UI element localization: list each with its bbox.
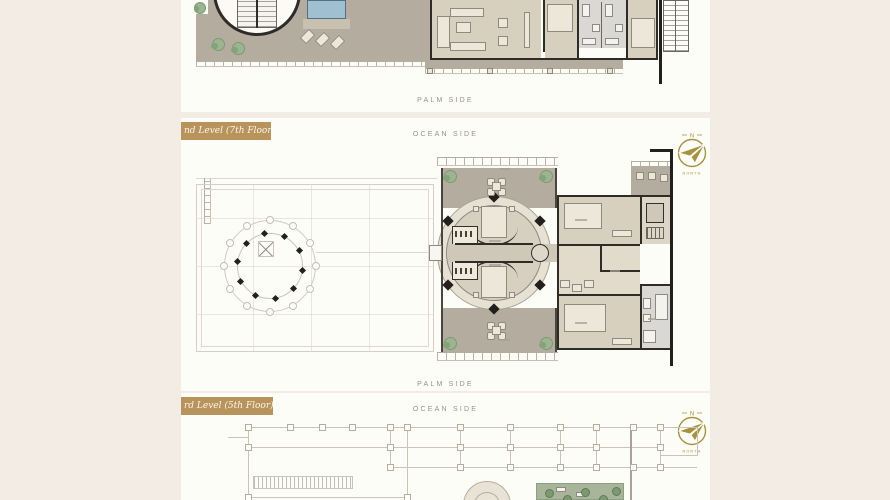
shear-wall-line xyxy=(630,424,632,500)
structural-column xyxy=(404,424,411,431)
structural-column xyxy=(630,424,637,431)
structural-column xyxy=(245,424,252,431)
structural-column xyxy=(657,464,664,471)
structural-column xyxy=(507,444,514,451)
shrub-icon xyxy=(563,495,572,500)
plan-line xyxy=(390,467,697,468)
structural-column xyxy=(387,444,394,451)
structural-column xyxy=(593,464,600,471)
structural-column xyxy=(245,494,252,500)
structural-column xyxy=(630,464,637,471)
structural-column xyxy=(457,464,464,471)
structural-column xyxy=(245,444,252,451)
structural-column xyxy=(557,464,564,471)
structural-column xyxy=(457,424,464,431)
plan-line xyxy=(660,455,697,456)
shrub-icon xyxy=(545,489,554,498)
plan-line xyxy=(407,427,408,498)
shrub-icon xyxy=(581,488,590,497)
structural-column xyxy=(457,444,464,451)
plan-line xyxy=(248,427,249,498)
brochure-page: PALM SIDE nd Level (7th Floor) OCEAN SID… xyxy=(0,0,890,500)
level5-plan xyxy=(0,0,890,500)
structural-column xyxy=(557,444,564,451)
shrub-icon xyxy=(599,495,608,500)
plan-line xyxy=(228,437,248,438)
plan-line xyxy=(697,427,698,456)
structural-column xyxy=(404,494,411,500)
plan-line xyxy=(248,497,408,498)
structural-column xyxy=(507,424,514,431)
structural-column xyxy=(657,424,664,431)
structural-column xyxy=(387,464,394,471)
structural-column xyxy=(657,444,664,451)
shrub-icon xyxy=(612,487,621,496)
structural-column xyxy=(593,424,600,431)
structural-column xyxy=(319,424,326,431)
structural-column xyxy=(593,444,600,451)
stair-hatch xyxy=(253,476,353,489)
structural-column xyxy=(349,424,356,431)
structural-column xyxy=(387,424,394,431)
structural-column xyxy=(287,424,294,431)
structural-column xyxy=(557,424,564,431)
structural-column xyxy=(507,464,514,471)
outdoor-furniture xyxy=(556,487,566,492)
